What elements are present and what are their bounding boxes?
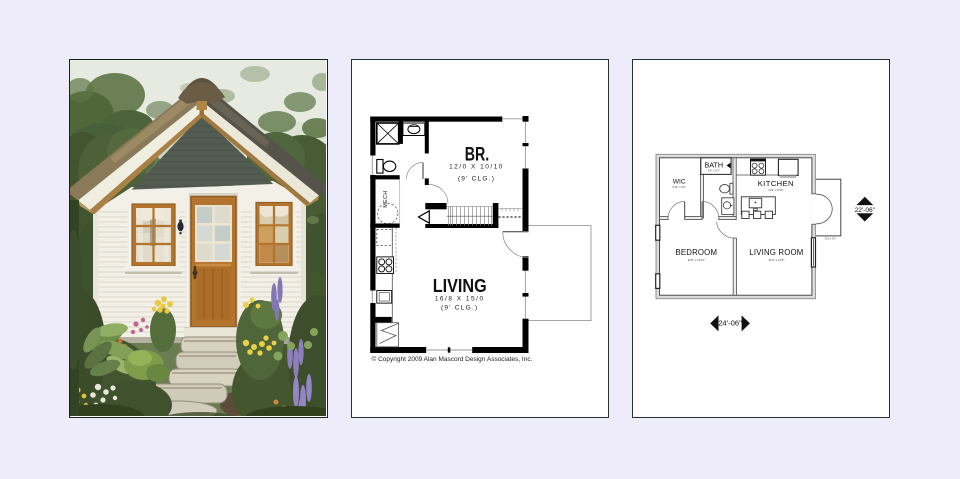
svg-text:LIVING: LIVING: [433, 276, 487, 296]
svg-text:BATH: BATH: [704, 161, 723, 170]
svg-text:16'0 x 8'0: 16'0 x 8'0: [825, 237, 836, 241]
svg-text:12/0 X 10/10: 12/0 X 10/10: [449, 164, 504, 171]
svg-text:5'11" x 9'3": 5'11" x 9'3": [673, 185, 686, 189]
svg-text:BR.: BR.: [465, 145, 490, 166]
svg-text:LIVING ROOM: LIVING ROOM: [749, 248, 803, 257]
svg-text:BEDROOM: BEDROOM: [675, 248, 717, 257]
svg-text:(9' CLG.): (9' CLG.): [441, 304, 478, 311]
svg-text:MECH: MECH: [383, 190, 389, 207]
svg-text:KITCHEN: KITCHEN: [758, 179, 794, 188]
svg-text:(9' CLG.): (9' CLG.): [458, 176, 495, 183]
svg-text:24'-06": 24'-06": [718, 318, 742, 327]
svg-text:11'8" x 11'11": 11'8" x 11'11": [688, 258, 705, 262]
svg-text:WIC: WIC: [673, 179, 686, 186]
svg-text:22'-06": 22'-06": [855, 207, 876, 214]
svg-text:11'9" x 11'8": 11'9" x 11'8": [768, 258, 784, 262]
svg-text:5'6" x 9'3": 5'6" x 9'3": [708, 168, 720, 172]
svg-text:11'9" x 9'10": 11'9" x 9'10": [768, 188, 783, 192]
svg-text:© Copyright 2009 Alan Mascord: © Copyright 2009 Alan Mascord Design Ass…: [372, 355, 533, 363]
svg-text:16/8 X 15/0: 16/8 X 15/0: [435, 295, 485, 302]
